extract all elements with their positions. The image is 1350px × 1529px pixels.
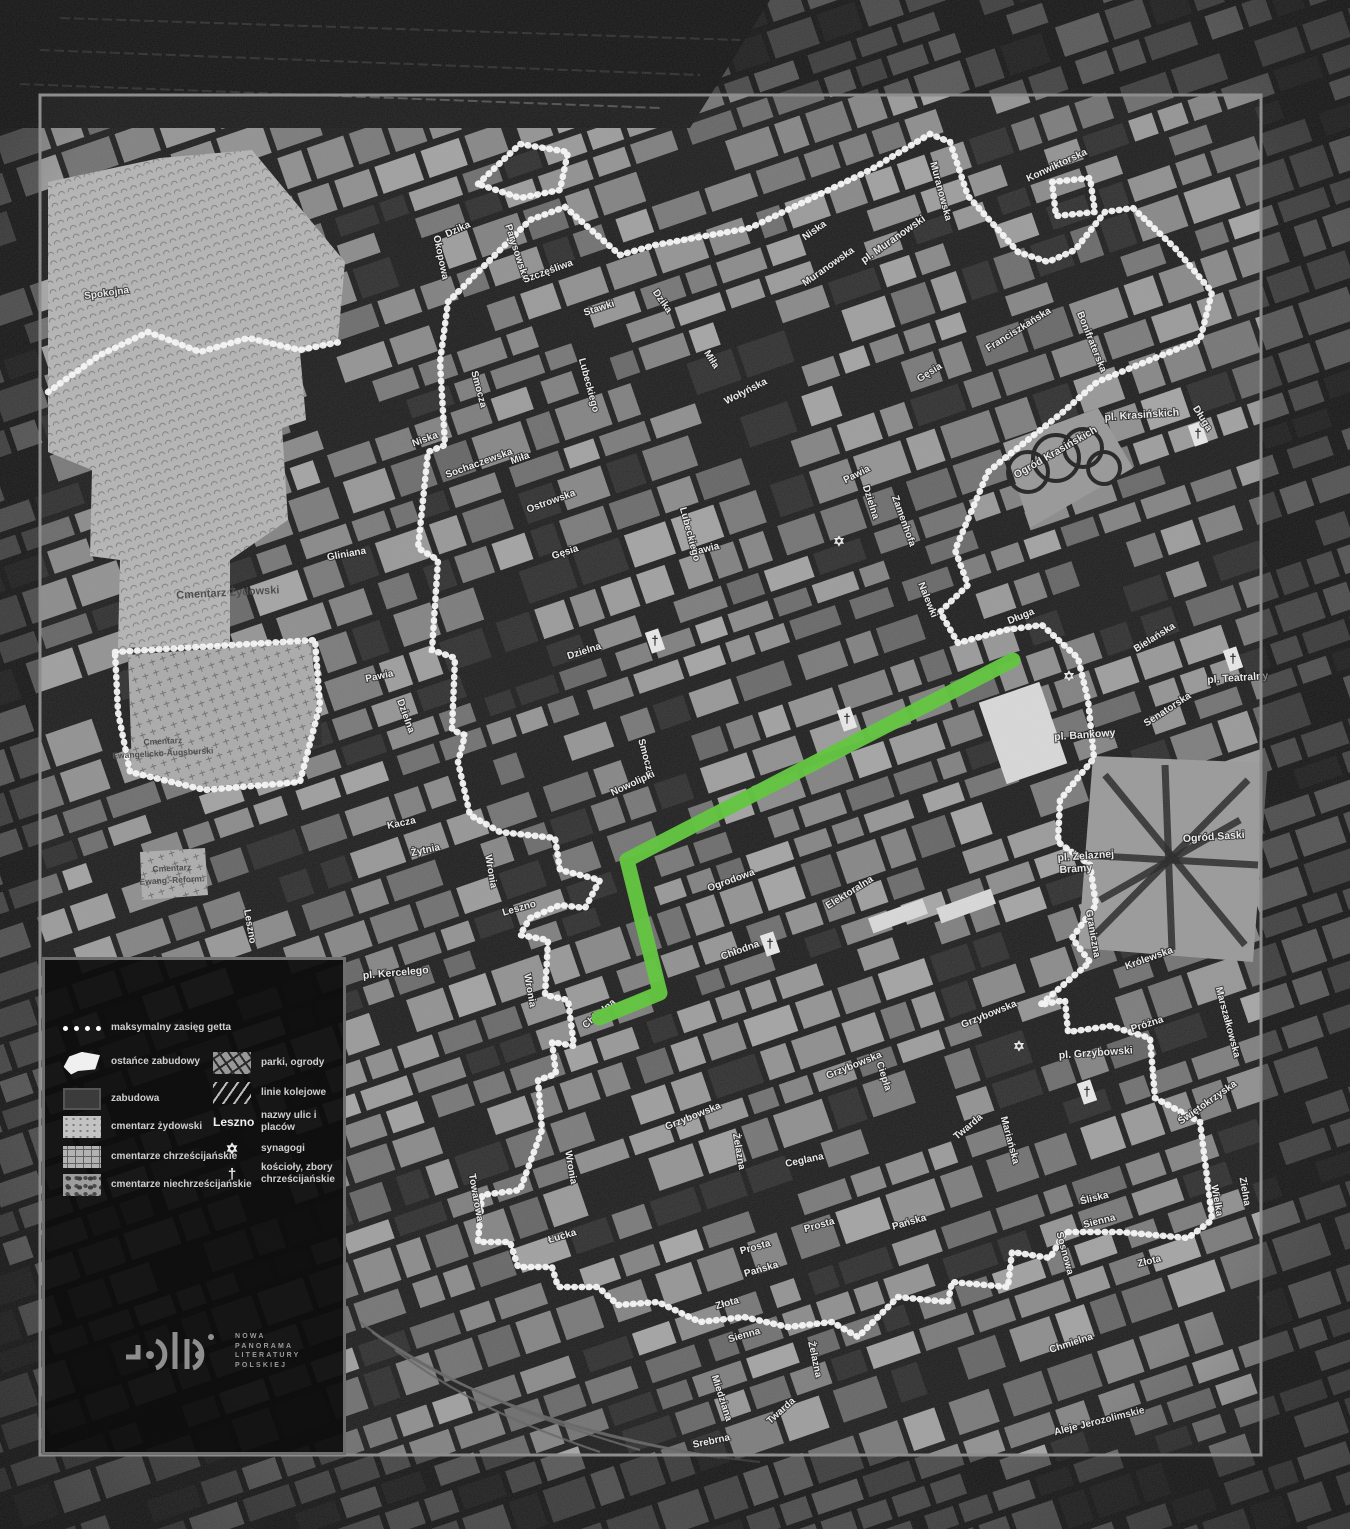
synagogue-icon: ✡ [213,1138,251,1160]
legend-item-label: synagogi [261,1143,305,1155]
legend-item-churches: † kościoły, zbory chrześcijańskie [213,1162,341,1186]
legend-item-label: cmentarz żydowski [111,1121,202,1133]
legend-item-jewish-cemetery: cmentarz żydowski [63,1116,202,1138]
legend-item-parks: parki, ogrody [213,1052,324,1074]
nplp-logo-text: NOWA PANORAMA LITERATURY POLSKIEJ [235,1332,301,1370]
remnants-swatch [61,1048,102,1075]
legend-item-label: kościoły, zbory chrześcijańskie [261,1162,341,1186]
legend-item-label: zabudowa [111,1093,159,1105]
legend-item-railways: linie kolejowe [213,1082,326,1104]
map-stage: ††††††✡✡✡SpokojnaDzikaOkopowaParysowskaS… [0,0,1350,1529]
railways-swatch [213,1082,251,1104]
legend-panel: maksymalny zasięg getta ostańce zabudowy… [42,957,346,1455]
nplp-logo: NOWA PANORAMA LITERATURY POLSKIEJ [123,1328,301,1374]
logo-line: POLSKIEJ [235,1361,301,1371]
nonchristian-cemeteries-swatch [63,1174,101,1196]
legend-item-label: nazwy ulic i placów [261,1110,343,1134]
logo-line: LITERATURY [235,1351,301,1361]
legend-item-synagogues: ✡ synagogi [213,1138,305,1160]
legend-item-label: maksymalny zasięg getta [111,1022,231,1034]
legend-item-label: parki, ogrody [261,1057,324,1069]
jewish-cemetery-swatch [63,1116,101,1138]
legend-item-buildings: zabudowa [63,1088,159,1110]
legend-item-label: ostańce zabudowy [111,1056,200,1068]
legend-item-remnants: ostańce zabudowy [63,1052,200,1072]
legend-item-label: linie kolejowe [261,1087,326,1099]
church-icon: † [213,1163,251,1185]
logo-line: PANORAMA [235,1342,301,1352]
legend-item-street-names: Leszno nazwy ulic i placów [213,1110,343,1134]
logo-line: NOWA [235,1332,301,1342]
legend-item-christian-cemeteries: cmentarze chrześcijańskie [63,1146,237,1168]
nplp-logo-glyphs [123,1328,223,1374]
christian-cemeteries-swatch [63,1146,101,1168]
street-name-sample: Leszno [213,1111,251,1133]
ghetto-extent-swatch [63,1026,101,1031]
legend-item-ghetto-extent: maksymalny zasięg getta [63,1022,231,1034]
buildings-swatch [63,1088,101,1110]
parks-swatch [213,1052,251,1074]
